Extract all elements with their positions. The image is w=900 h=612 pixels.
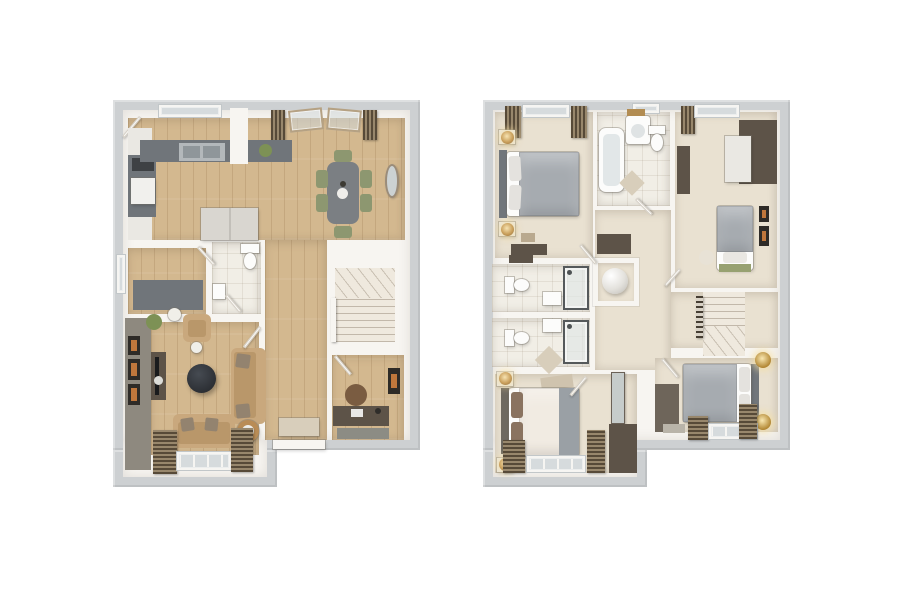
b2-wardrobe xyxy=(609,424,637,473)
b1-lamp-bottom xyxy=(501,223,514,236)
b3-duvet xyxy=(717,206,753,252)
b4-mat xyxy=(663,424,685,433)
wc-basin xyxy=(213,284,225,299)
es1-basin xyxy=(543,292,561,305)
study-rug xyxy=(337,428,389,439)
stairs-run xyxy=(335,298,395,342)
b2-blind-right xyxy=(587,430,605,473)
es2-shower-head xyxy=(567,324,572,329)
es2-toilet-tank xyxy=(505,330,514,346)
water-tank xyxy=(602,268,628,294)
record-player xyxy=(154,376,163,385)
es2-basin xyxy=(543,319,561,332)
b3-pillow xyxy=(723,252,747,263)
table-bottle xyxy=(340,181,346,187)
bath-basin-bowl xyxy=(631,124,645,138)
b4-blind-left xyxy=(688,416,708,440)
b2-throw xyxy=(559,388,579,456)
b2-mirror-wardrobe xyxy=(611,372,625,424)
b3-throw xyxy=(719,264,751,272)
first-floor-plan xyxy=(483,100,790,487)
living-window xyxy=(177,452,231,470)
dining-chair-north xyxy=(334,150,352,162)
kitchen-oven xyxy=(131,178,155,204)
b2-lamp-top xyxy=(499,372,512,385)
b3-wardrobe-white xyxy=(725,136,751,182)
b1-window xyxy=(523,105,569,117)
floor-lamp xyxy=(168,308,181,321)
dining-blind-right xyxy=(363,110,377,140)
living-blind-right xyxy=(231,428,253,472)
b1-headboard xyxy=(499,150,507,218)
study-chair xyxy=(345,384,367,406)
b3-blind xyxy=(681,106,695,134)
b1-stool xyxy=(521,233,535,242)
table-centerpiece xyxy=(337,188,348,199)
desk-lamp xyxy=(375,408,381,414)
dining-glazed-door-b xyxy=(326,108,362,133)
b2-pillow-a xyxy=(511,392,523,418)
b3-art-b xyxy=(762,231,766,241)
stairs-railing xyxy=(331,298,336,342)
floorplan-render xyxy=(0,0,900,612)
utility-window xyxy=(117,255,125,293)
b2-window xyxy=(527,456,585,472)
side-table-small xyxy=(191,342,202,353)
gallery-art-1 xyxy=(131,340,137,351)
bath-toilet-bowl xyxy=(651,134,663,151)
b1-blind-right xyxy=(571,106,587,138)
b3-pouf xyxy=(699,250,714,265)
sofa-right-pillow-b xyxy=(235,403,250,418)
sofa-bottom-pillow-a xyxy=(180,417,195,432)
b1-lamp-top xyxy=(501,131,514,144)
b1-dresser xyxy=(511,244,547,255)
ground-floor-plan xyxy=(113,100,420,487)
landing-dresser xyxy=(597,234,631,254)
es1-toilet-tank xyxy=(505,277,514,293)
bath-shelf xyxy=(627,109,645,116)
living-plant xyxy=(146,314,162,330)
gallery-art-2 xyxy=(131,363,137,376)
dining-blind-left xyxy=(271,110,285,140)
sofa-bottom-pillow-b xyxy=(204,417,218,431)
gallery-art-3 xyxy=(131,388,137,401)
kitchen-wall-stub xyxy=(230,108,248,164)
sofa-right-pillow-a xyxy=(235,353,251,369)
front-door xyxy=(273,440,325,449)
dining-chair-west-1 xyxy=(316,170,328,188)
b1-pillow-top xyxy=(508,156,521,182)
wc-toilet-bowl xyxy=(244,253,256,269)
b4-duvet xyxy=(683,364,737,422)
dining-chair-east-1 xyxy=(360,170,372,188)
b1-pillow-bottom xyxy=(508,185,521,211)
b4-pillow-a xyxy=(739,367,750,392)
living-blind-left xyxy=(153,430,177,474)
stairs-up-winder xyxy=(703,326,745,356)
es2-toilet-bowl xyxy=(514,332,529,344)
b1-duvet xyxy=(519,152,579,216)
b3-art-a xyxy=(762,210,766,218)
kitchen-window xyxy=(159,105,221,117)
b4-blind-right xyxy=(739,404,757,439)
wall-mirror xyxy=(385,164,399,198)
stairs-winder xyxy=(335,268,395,298)
bathtub-inner xyxy=(603,134,620,186)
armchair-cushion xyxy=(188,320,206,337)
sink-bowl-left xyxy=(183,146,200,158)
b4-lamp-bottom xyxy=(755,414,771,430)
stairs-balustrade xyxy=(696,296,703,338)
es1-shelf xyxy=(509,255,533,263)
b4-lamp-top xyxy=(755,352,771,368)
hall-floor xyxy=(265,240,327,440)
coffee-table xyxy=(187,364,216,393)
b3-desk xyxy=(677,146,690,194)
island-seam xyxy=(229,208,231,240)
dining-chair-west-2 xyxy=(316,194,328,212)
es1-toilet-bowl xyxy=(514,279,529,291)
study-art xyxy=(391,374,397,388)
sink-bowl-right xyxy=(203,146,220,158)
b2-blind-left xyxy=(503,440,525,473)
wc-toilet-tank xyxy=(241,244,259,253)
dining-chair-south xyxy=(334,226,352,238)
stairs-up-run xyxy=(703,292,745,326)
study-laptop xyxy=(351,409,363,417)
dining-chair-east-2 xyxy=(360,194,372,212)
b3-window xyxy=(695,105,739,117)
bath-toilet-tank xyxy=(649,126,665,134)
counter-plant xyxy=(259,144,272,157)
es1-shower-head xyxy=(567,270,572,275)
dining-glazed-door-a xyxy=(288,107,324,132)
utility-counter xyxy=(133,280,203,310)
hall-doormat xyxy=(279,418,319,436)
